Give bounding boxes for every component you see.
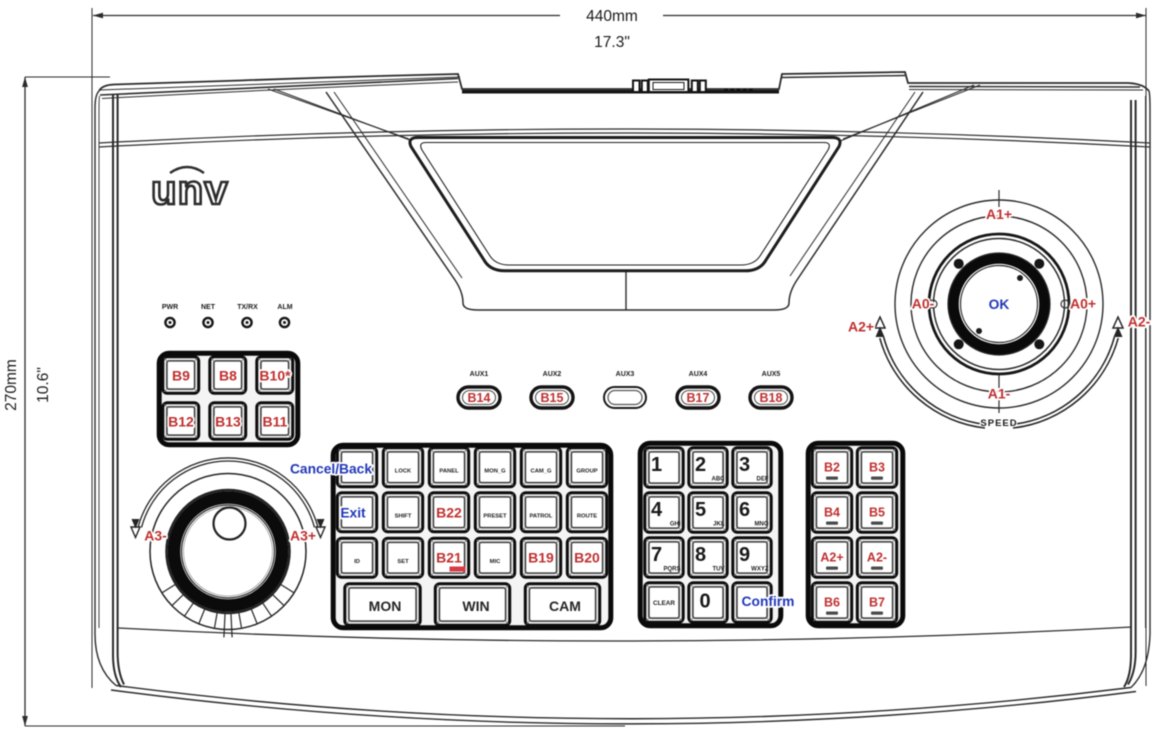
svg-text:SHIFT: SHIFT [395,514,412,520]
svg-text:2: 2 [695,454,706,476]
svg-text:Exit: Exit [340,506,366,521]
svg-text:PRESET: PRESET [483,514,507,520]
svg-text:0: 0 [700,591,711,613]
svg-text:9: 9 [739,544,750,566]
svg-text:WIN: WIN [462,598,489,614]
svg-text:AUX2: AUX2 [543,371,562,378]
svg-text:4: 4 [651,499,663,521]
svg-text:7: 7 [651,544,662,566]
svg-text:TUV: TUV [713,567,725,573]
svg-text:MNO: MNO [755,522,769,528]
svg-text:B8: B8 [219,368,237,384]
svg-text:B4: B4 [824,506,840,520]
svg-text:unv: unv [151,166,229,213]
svg-text:B12: B12 [168,414,194,430]
svg-text:A1+: A1+ [986,206,1012,222]
svg-text:Confirm: Confirm [742,594,795,609]
svg-text:WXYZ: WXYZ [751,567,769,573]
svg-text:A2-: A2- [867,551,887,565]
svg-text:B2: B2 [824,461,840,475]
svg-text:CAM: CAM [549,598,581,614]
svg-text:B15: B15 [541,391,564,405]
svg-text:B18: B18 [760,391,783,405]
svg-text:MON_G: MON_G [484,469,506,475]
svg-text:A0+: A0+ [1070,296,1096,312]
svg-text:3: 3 [739,454,750,476]
svg-text:1: 1 [651,454,662,476]
svg-text:PWR: PWR [162,304,178,311]
svg-text:NET: NET [201,304,216,311]
svg-text:TX/RX: TX/RX [237,304,258,311]
svg-text:LOCK: LOCK [395,469,412,475]
svg-text:DEF: DEF [757,477,769,483]
svg-text:SET: SET [397,559,409,565]
svg-text:AUX1: AUX1 [470,371,489,378]
svg-text:6: 6 [739,499,750,521]
svg-text:440mm: 440mm [586,8,638,25]
svg-text:MON: MON [369,598,402,614]
svg-text:B17: B17 [687,391,710,405]
svg-text:8: 8 [695,544,706,566]
svg-text:A2+: A2+ [848,319,874,335]
svg-text:CLEAR: CLEAR [653,600,675,607]
svg-text:ID: ID [354,559,360,565]
svg-text:17.3": 17.3" [594,34,630,51]
svg-text:ABC: ABC [712,477,726,483]
svg-text:B20: B20 [574,550,600,566]
svg-text:OK: OK [989,297,1010,312]
svg-text:B14: B14 [468,391,491,405]
svg-text:B3: B3 [869,461,885,475]
svg-text:B10*: B10* [259,368,291,384]
svg-text:A2+: A2+ [820,551,843,565]
svg-text:A2-: A2- [1128,314,1151,330]
svg-text:B7: B7 [869,596,885,610]
svg-text:Cancel/Back: Cancel/Back [290,462,372,477]
svg-text:A3-: A3- [144,528,167,544]
svg-text:ROUTE: ROUTE [577,514,597,520]
svg-text:A3+: A3+ [290,528,316,544]
svg-text:B19: B19 [528,550,554,566]
svg-text:PQRS: PQRS [663,567,680,573]
svg-text:B11: B11 [263,414,288,430]
svg-text:MIC: MIC [490,559,501,565]
svg-text:GROUP: GROUP [576,469,597,475]
svg-text:PATROL: PATROL [530,514,553,520]
svg-text:GHI: GHI [670,522,681,528]
svg-text:B6: B6 [824,596,840,610]
svg-text:270mm: 270mm [3,359,20,411]
svg-text:B21: B21 [436,550,462,566]
svg-text:_: _ [720,612,725,618]
svg-text:B22: B22 [436,505,462,521]
svg-text:PANEL: PANEL [439,469,459,475]
svg-text:B9: B9 [172,368,190,384]
svg-text:AUX3: AUX3 [616,371,635,378]
svg-text:SPEED: SPEED [980,418,1017,429]
svg-text:A0-: A0- [912,296,935,312]
svg-text:B5: B5 [869,506,885,520]
svg-text:5: 5 [695,499,706,521]
svg-text:JKL: JKL [713,522,725,528]
svg-text:A1-: A1- [988,386,1011,402]
svg-text:ALM: ALM [277,304,292,311]
svg-text:CAM_G: CAM_G [531,469,552,475]
svg-text:10.6": 10.6" [35,367,52,403]
svg-text:B13: B13 [215,414,241,430]
svg-text:AUX4: AUX4 [689,371,708,378]
svg-text:AUX5: AUX5 [762,371,781,378]
